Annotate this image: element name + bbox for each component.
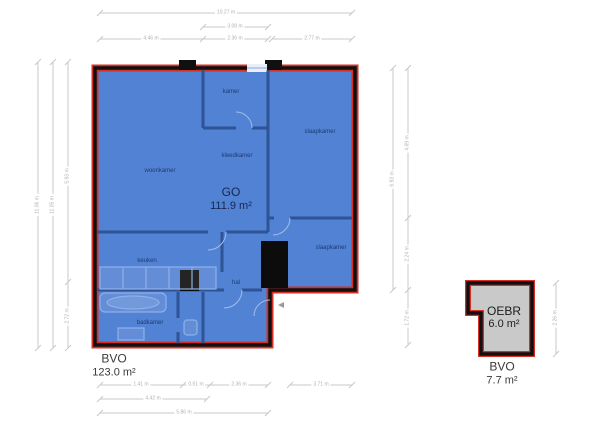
dim-left-lower: 2.72 m bbox=[66, 306, 71, 325]
dim-bottom-a: 1.41 m bbox=[131, 383, 150, 388]
oebr-area-value: 6.0 m² bbox=[487, 319, 521, 332]
sink bbox=[118, 328, 144, 340]
go-area-value: 111.9 m² bbox=[210, 200, 252, 213]
dim-bottom-b: 0.51 m bbox=[186, 383, 205, 388]
room-label-kleedkamer: kleedkamer bbox=[221, 153, 252, 159]
go-label-text: GO bbox=[210, 186, 252, 200]
room-label-slaapkamer-2: slaapkamer bbox=[315, 245, 346, 251]
dim-top-total: 10.27 m bbox=[215, 11, 237, 16]
dim-bottom-e: 4.42 m bbox=[143, 397, 162, 402]
dim-right-outer: 6.93 m bbox=[391, 169, 396, 188]
bvo-label-text: BVO bbox=[92, 352, 135, 367]
room-label-hal: hal bbox=[232, 280, 240, 286]
dim-left-mid: 11.05 m bbox=[51, 194, 56, 216]
chimney-block bbox=[179, 60, 196, 70]
go-area-label: GO 111.9 m² bbox=[210, 186, 252, 212]
toilet bbox=[184, 320, 197, 335]
room-label-keuken: keuken bbox=[137, 258, 156, 264]
bvo-annex-label: BVO 7.7 m² bbox=[486, 360, 517, 389]
floorplan-page: woonkamer kamer kleedkamer slaapkamer sl… bbox=[0, 0, 600, 424]
dim-annex-right: 2.26 m bbox=[554, 308, 559, 327]
oebr-area-label: OEBR 6.0 m² bbox=[487, 304, 521, 332]
dim-bottom-d: 3.71 m bbox=[311, 383, 330, 388]
dim-top-c: 2.77 m bbox=[302, 37, 321, 42]
shaft-block bbox=[261, 241, 288, 288]
oebr-label-text: OEBR bbox=[487, 304, 521, 318]
bvo-area-value: 123.0 m² bbox=[92, 367, 135, 381]
dim-top-a: 4.46 m bbox=[141, 37, 160, 42]
dim-right-lower: 1.72 m bbox=[406, 308, 411, 327]
dim-top-b: 2.36 m bbox=[225, 37, 244, 42]
bvo-main-label: BVO 123.0 m² bbox=[92, 352, 135, 381]
entrance-arrow-icon bbox=[278, 302, 284, 308]
dim-left-outer: 11.06 m bbox=[36, 194, 41, 216]
annex-bvo-label-text: BVO bbox=[486, 360, 517, 375]
dim-bottom-f: 5.86 m bbox=[174, 411, 193, 416]
room-label-kamer: kamer bbox=[223, 89, 240, 95]
dim-right-upper: 4.69 m bbox=[406, 133, 411, 152]
room-label-woonkamer: woonkamer bbox=[144, 168, 175, 174]
room-label-badkamer: badkamer bbox=[137, 320, 164, 326]
dim-top-mid: 3.08 m bbox=[225, 25, 244, 30]
dim-right-mid: 2.24 m bbox=[406, 244, 411, 263]
room-label-slaapkamer: slaapkamer bbox=[304, 129, 335, 135]
dim-bottom-c: 2.36 m bbox=[229, 383, 248, 388]
annex-bvo-area-value: 7.7 m² bbox=[486, 375, 517, 389]
dim-left-upper: 5.93 m bbox=[66, 166, 71, 185]
chimney-block bbox=[265, 60, 282, 70]
kitchen-counter bbox=[100, 267, 216, 289]
